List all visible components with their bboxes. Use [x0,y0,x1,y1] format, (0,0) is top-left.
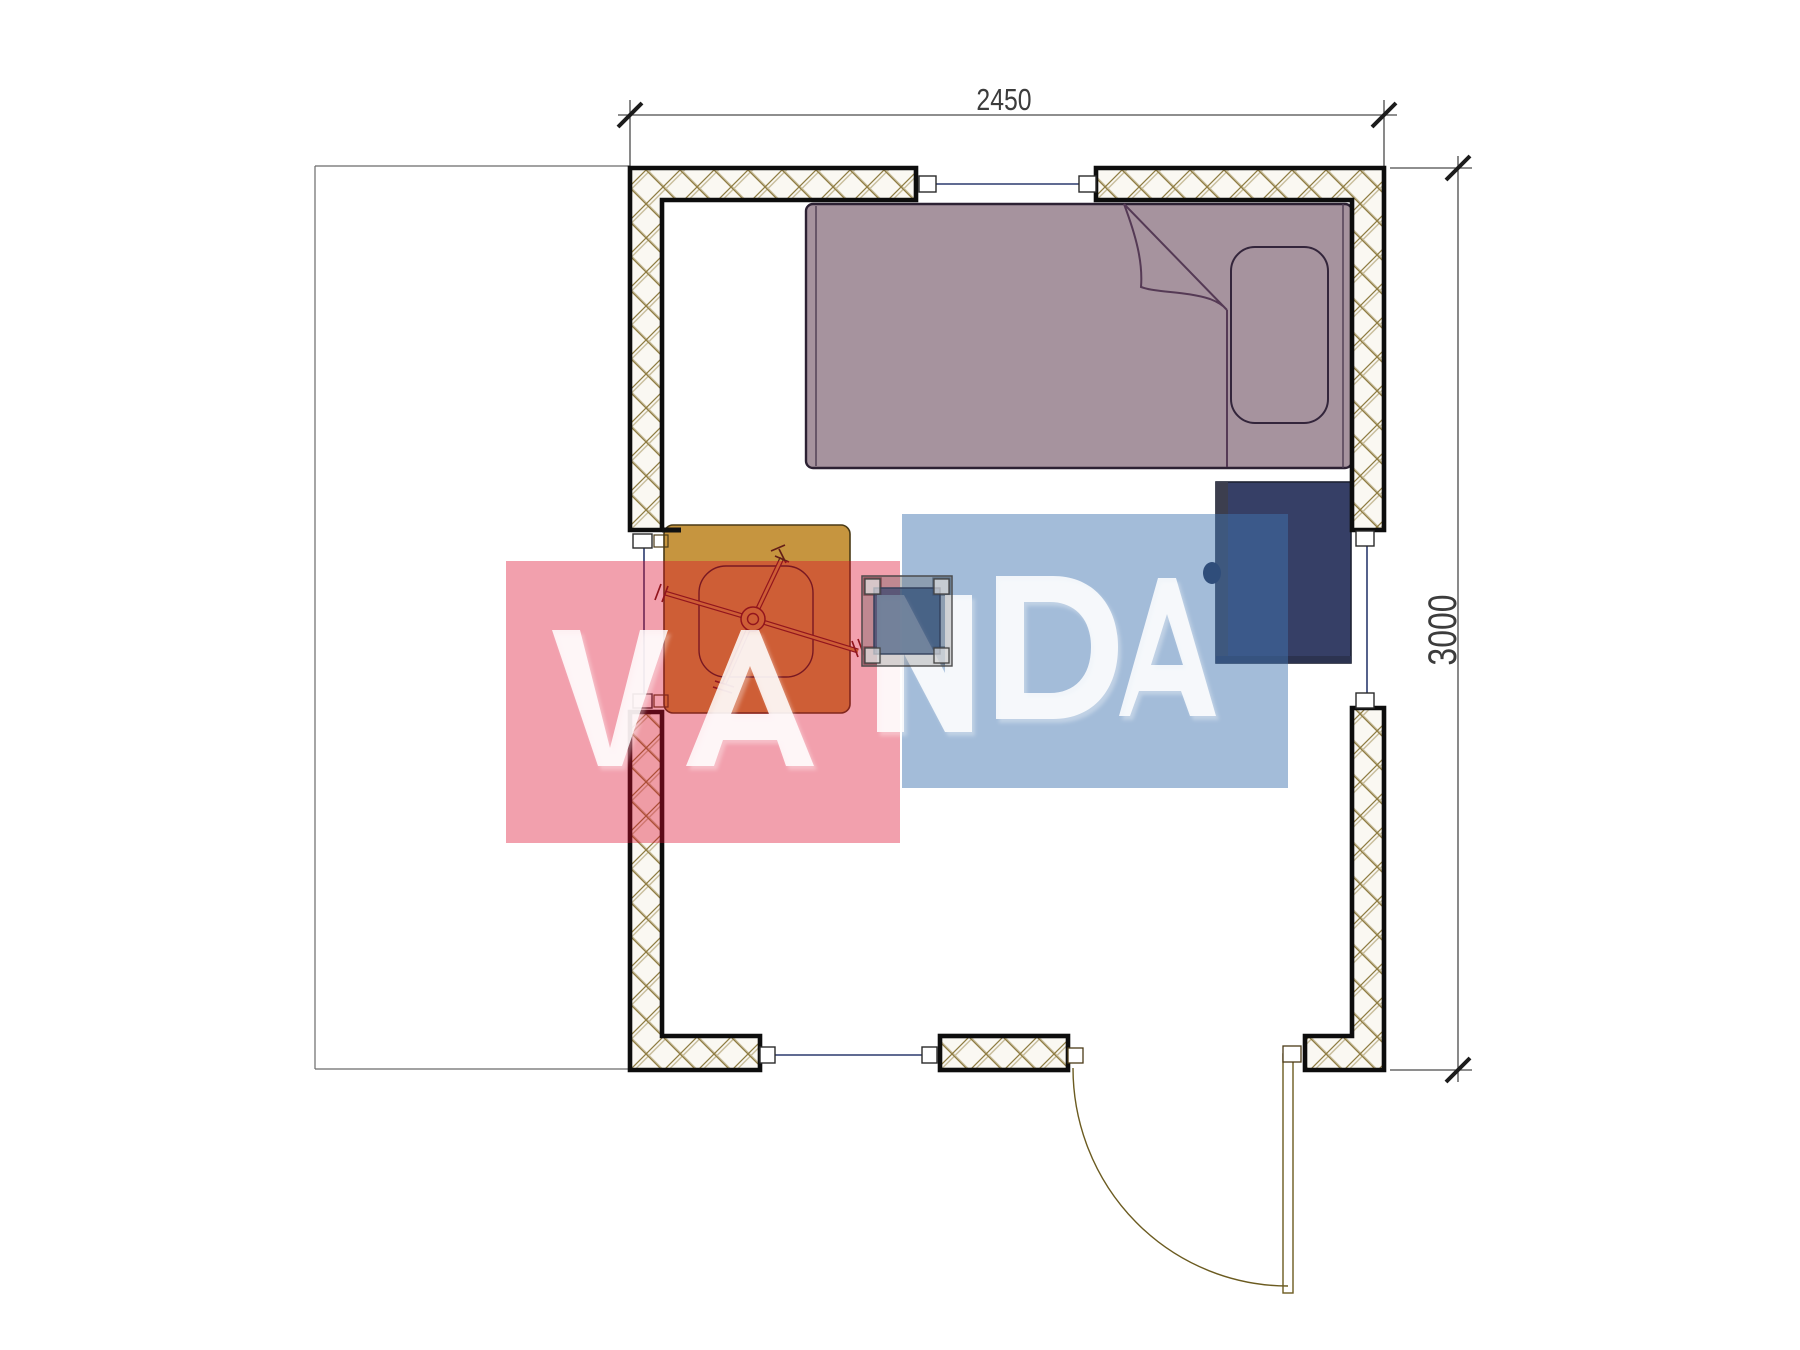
svg-text:2450: 2450 [976,82,1031,116]
svg-text:3000: 3000 [1420,594,1465,665]
